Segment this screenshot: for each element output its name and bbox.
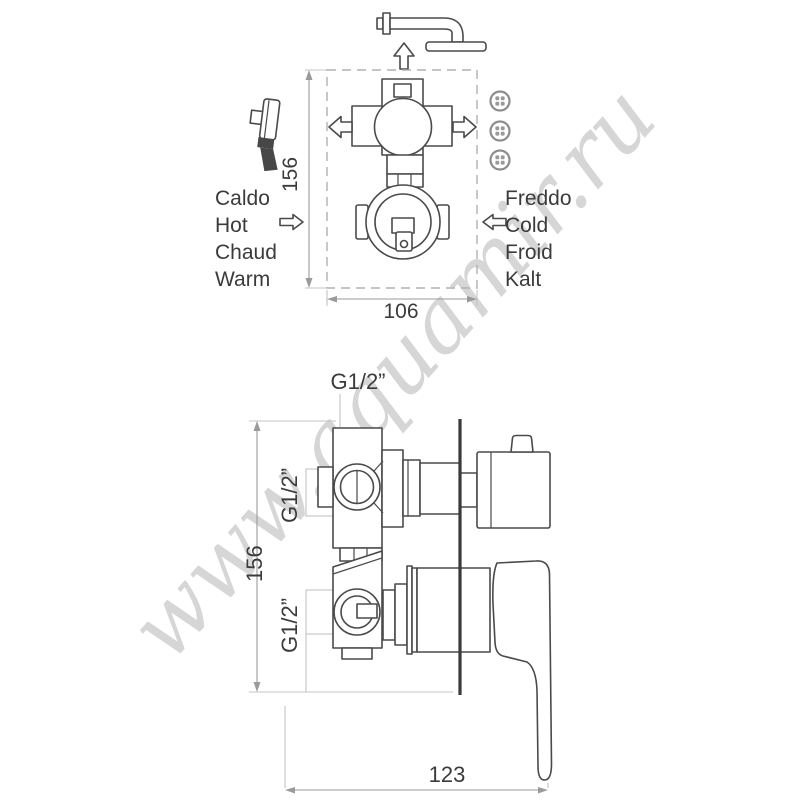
side-depth-dimension: 123 <box>285 706 548 794</box>
thermostat-cartridge <box>375 99 432 156</box>
bottom-port-label: G1/2” <box>277 598 302 653</box>
flow-arrow-up-icon <box>394 43 414 69</box>
valve-front-view <box>352 79 452 259</box>
hot-label-fr: Chaud <box>215 241 277 264</box>
flow-arrow-right-icon <box>453 117 476 138</box>
front-height-value: 156 <box>279 157 302 192</box>
side-view-lower-body <box>333 548 552 780</box>
side-height-value: 156 <box>242 545 267 582</box>
mid-port-label: G1/2” <box>277 468 302 523</box>
diverter-lever <box>392 218 414 233</box>
mixer-lever-handle <box>493 561 552 780</box>
hot-water-labels: Caldo Hot Chaud Warm <box>215 187 277 291</box>
escutcheon-sleeve <box>417 568 490 652</box>
cold-label-en: Cold <box>505 214 548 237</box>
hot-label-en: Hot <box>215 214 248 237</box>
hot-label-it: Caldo <box>215 187 270 210</box>
thermostat-knob <box>477 452 550 528</box>
side-view-upper-body <box>318 428 550 548</box>
body-jets-icon <box>491 92 510 170</box>
cold-label-it: Freddo <box>505 187 572 210</box>
knob-button <box>511 436 533 453</box>
overhead-shower-icon <box>377 13 486 51</box>
cold-label-de: Kalt <box>505 268 541 291</box>
hot-label-de: Warm <box>215 268 270 291</box>
flow-arrow-left-icon <box>329 117 352 138</box>
front-width-value: 106 <box>383 300 418 323</box>
shower-mixer-technical-drawing: www.aquamir.ru www.aquamir.ru <box>0 0 800 800</box>
hot-inlet-arrow-icon <box>280 215 303 230</box>
side-depth-value: 123 <box>429 762 466 787</box>
top-port-label: G1/2” <box>330 369 385 394</box>
technical-drawing-page: www.aquamir.ru www.aquamir.ru <box>0 0 800 800</box>
front-height-dimension: 156 <box>279 70 326 288</box>
cold-label-fr: Froid <box>505 241 553 264</box>
